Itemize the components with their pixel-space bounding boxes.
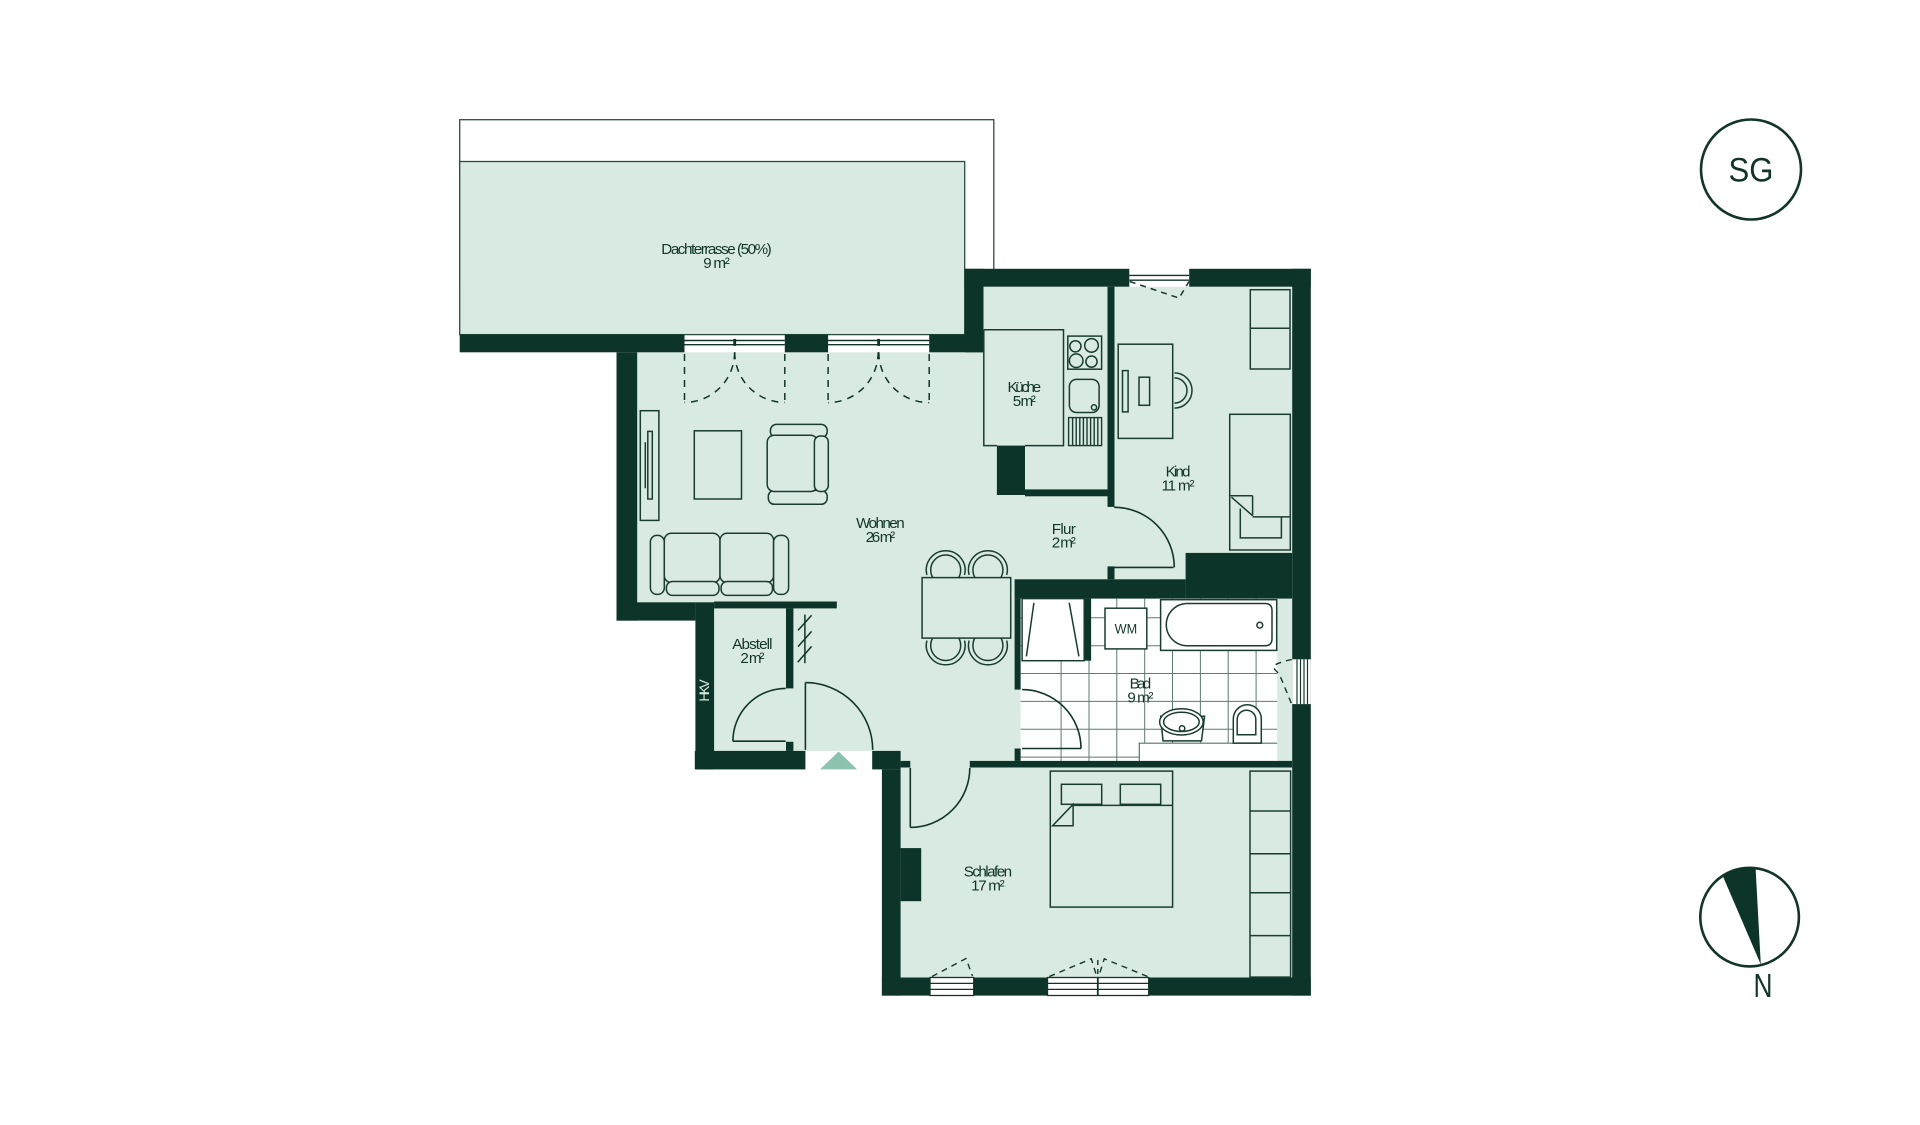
svg-text:SG: SG <box>1729 152 1774 190</box>
svg-text:9 m²: 9 m² <box>703 255 730 272</box>
svg-text:17 m²: 17 m² <box>971 877 1005 894</box>
svg-text:2 m²: 2 m² <box>740 650 764 667</box>
svg-text:26 m²: 26 m² <box>866 529 896 546</box>
svg-text:11 m²: 11 m² <box>1161 477 1194 494</box>
svg-text:9 m²: 9 m² <box>1127 689 1153 706</box>
svg-text:HKV: HKV <box>697 679 712 701</box>
svg-text:WM: WM <box>1115 622 1138 637</box>
svg-text:N: N <box>1754 967 1773 1004</box>
svg-text:2 m²: 2 m² <box>1052 535 1076 552</box>
svg-text:5 m²: 5 m² <box>1013 393 1036 410</box>
